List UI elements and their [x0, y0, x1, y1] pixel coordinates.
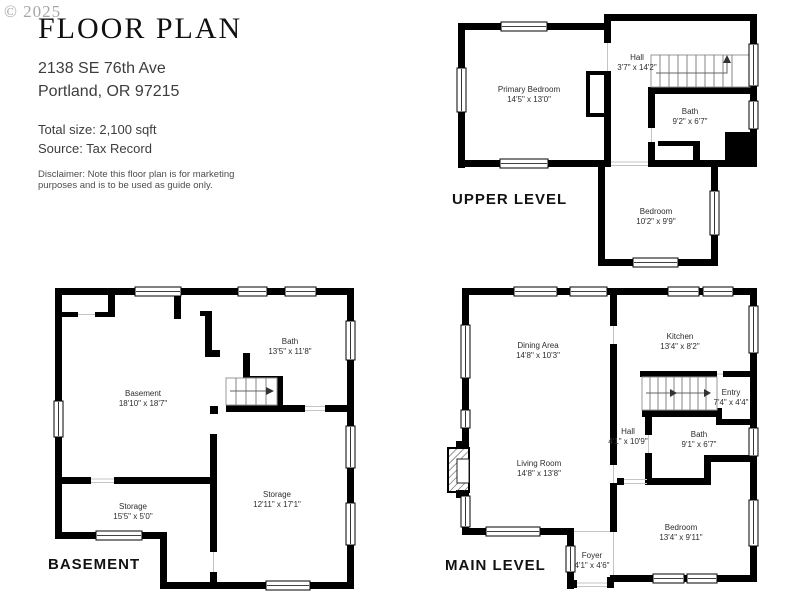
windows [54, 287, 355, 590]
window-marker [749, 101, 758, 129]
floorplan-page: © 2025 FLOOR PLAN 2138 SE 76th Ave Portl… [0, 0, 800, 600]
chimney [725, 132, 752, 162]
basement-label: BASEMENT [48, 556, 140, 573]
total-size: Total size: 2,100 sqft [38, 120, 242, 139]
room-name: Storage [253, 490, 301, 500]
window-marker [238, 287, 267, 296]
window-marker [703, 287, 733, 296]
room-label-upper-hall: Hall 3'7" x 14'2" [617, 53, 656, 73]
room-dims: 14'8" x 13'8" [517, 469, 561, 479]
window-marker [96, 531, 142, 540]
room-dims: 13'4" x 9'11" [659, 533, 702, 543]
window-marker [346, 321, 355, 360]
window-marker [461, 325, 470, 378]
source: Source: Tax Record [38, 139, 242, 158]
room-label-main-hall: Hall 4'1" x 10'9" [608, 427, 647, 447]
header: FLOOR PLAN 2138 SE 76th Ave Portland, OR… [38, 12, 242, 191]
upper-level-label: UPPER LEVEL [452, 191, 567, 208]
window-marker [346, 503, 355, 545]
room-dims: 9'2" x 6'7" [673, 117, 708, 127]
basement-plan [40, 282, 360, 594]
stairs [226, 378, 277, 405]
page-title: FLOOR PLAN [38, 12, 242, 46]
room-label-storage-small: Storage 15'5" x 5'0" [113, 502, 152, 522]
room-name: Foyer [575, 551, 610, 561]
room-label-primary-bedroom: Primary Bedroom 14'5" x 13'0" [498, 85, 560, 105]
window-marker [461, 410, 470, 428]
stairs [642, 377, 717, 410]
room-label-dining-area: Dining Area 14'8" x 10'3" [516, 341, 560, 361]
room-name: Bath [682, 430, 717, 440]
room-label-foyer: Foyer 4'1" x 4'6" [575, 551, 610, 571]
disclaimer-line-1: Disclaimer: Note this floor plan is for … [38, 169, 242, 180]
window-marker [486, 527, 540, 536]
room-dims: 10'2" x 9'9" [636, 217, 675, 227]
room-dims: 12'11" x 17'1" [253, 500, 301, 510]
room-label-upper-bedroom: Bedroom 10'2" x 9'9" [636, 207, 675, 227]
room-dims: 4'1" x 10'9" [608, 437, 647, 447]
room-name: Primary Bedroom [498, 85, 560, 95]
room-name: Hall [617, 53, 656, 63]
window-marker [749, 306, 758, 353]
upper-level-plan [450, 5, 762, 277]
room-name: Storage [113, 502, 152, 512]
room-label-main-bedroom: Bedroom 13'4" x 9'11" [659, 523, 702, 543]
room-name: Kitchen [660, 332, 699, 342]
walls [55, 288, 354, 589]
window-marker [749, 428, 758, 456]
window-marker [710, 191, 719, 235]
room-name: Living Room [517, 459, 561, 469]
room-dims: 18'10" x 18'7" [119, 399, 167, 409]
room-label-storage-large: Storage 12'11" x 17'1" [253, 490, 301, 510]
room-name: Bath [268, 337, 311, 347]
room-label-main-bath: Bath 9'1" x 6'7" [682, 430, 717, 450]
room-dims: 9'1" x 6'7" [682, 440, 717, 450]
room-label-living-room: Living Room 14'8" x 13'8" [517, 459, 561, 479]
window-marker [570, 287, 607, 296]
room-name: Dining Area [516, 341, 560, 351]
room-dims: 7'4" x 4'4" [714, 398, 749, 408]
window-marker [687, 574, 717, 583]
post [210, 406, 218, 414]
room-name: Bedroom [636, 207, 675, 217]
window-marker [266, 581, 310, 590]
room-label-basement-bath: Bath 13'5" x 11'8" [268, 337, 311, 357]
address-line-2: Portland, OR 97215 [38, 80, 242, 103]
window-marker [514, 287, 557, 296]
room-name: Hall [608, 427, 647, 437]
room-dims: 13'5" x 11'8" [268, 347, 311, 357]
window-marker [346, 426, 355, 468]
room-dims: 15'5" x 5'0" [113, 512, 152, 522]
room-label-entry: Entry 7'4" x 4'4" [714, 388, 749, 408]
window-marker [285, 287, 316, 296]
window-marker [501, 22, 547, 31]
address-line-1: 2138 SE 76th Ave [38, 57, 242, 80]
room-dims: 13'4" x 8'2" [660, 342, 699, 352]
window-marker [500, 159, 548, 168]
window-marker [633, 258, 678, 267]
window-marker [749, 500, 758, 546]
fireplace [448, 441, 469, 498]
window-marker [135, 287, 181, 296]
room-label-basement: Basement 18'10" x 18'7" [119, 389, 167, 409]
window-marker [461, 496, 470, 527]
room-name: Basement [119, 389, 167, 399]
window-marker [668, 287, 699, 296]
room-dims: 3'7" x 14'2" [617, 63, 656, 73]
stairs [651, 55, 750, 87]
room-dims: 14'8" x 10'3" [516, 351, 560, 361]
room-name: Bedroom [659, 523, 702, 533]
room-name: Bath [673, 107, 708, 117]
main-level-label: MAIN LEVEL [445, 557, 546, 574]
window-marker [457, 68, 466, 112]
disclaimer-line-2: purposes and is to be used as guide only… [38, 180, 242, 191]
room-name: Entry [714, 388, 749, 398]
window-marker [749, 44, 758, 86]
window-marker [653, 574, 684, 583]
room-label-upper-bath: Bath 9'2" x 6'7" [673, 107, 708, 127]
room-dims: 4'1" x 4'6" [575, 561, 610, 571]
room-label-kitchen: Kitchen 13'4" x 8'2" [660, 332, 699, 352]
room-dims: 14'5" x 13'0" [498, 95, 560, 105]
window-marker [54, 401, 63, 437]
